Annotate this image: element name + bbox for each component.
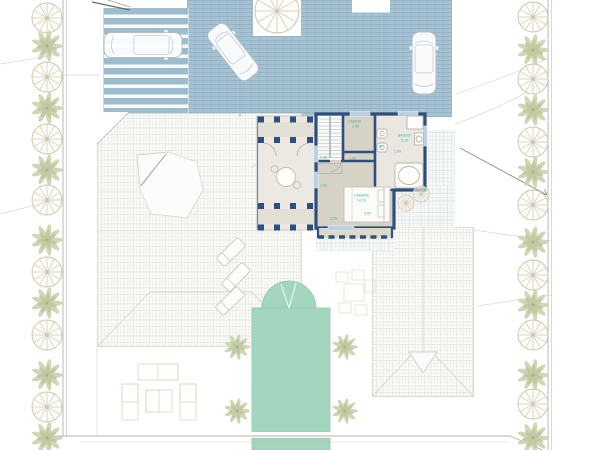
- dimension-label: 3.55: [330, 217, 337, 220]
- dimension-label: BAGNO: [398, 134, 411, 137]
- site-plan-canvas: CABINA2.40BAGNO5.10CAMERA14.204.052.351.…: [0, 0, 600, 450]
- dimension-label: 2.35: [320, 156, 327, 159]
- dimension-label: 2.60: [394, 150, 401, 153]
- dimension-label: CABINA: [348, 120, 361, 123]
- dimension-label: 90: [379, 145, 383, 148]
- dimension-label: 2.40: [352, 125, 359, 128]
- dimension-label: 5.10: [401, 139, 408, 142]
- dimension-annotations: CABINA2.40BAGNO5.10CAMERA14.204.052.351.…: [0, 0, 600, 450]
- dimension-label: CAMERA: [354, 194, 369, 197]
- dimension-label: 1.50: [320, 184, 327, 187]
- dimension-label: 14.20: [357, 199, 366, 202]
- dimension-label: 1.20: [349, 157, 356, 160]
- dimension-label: 4.05: [364, 212, 371, 215]
